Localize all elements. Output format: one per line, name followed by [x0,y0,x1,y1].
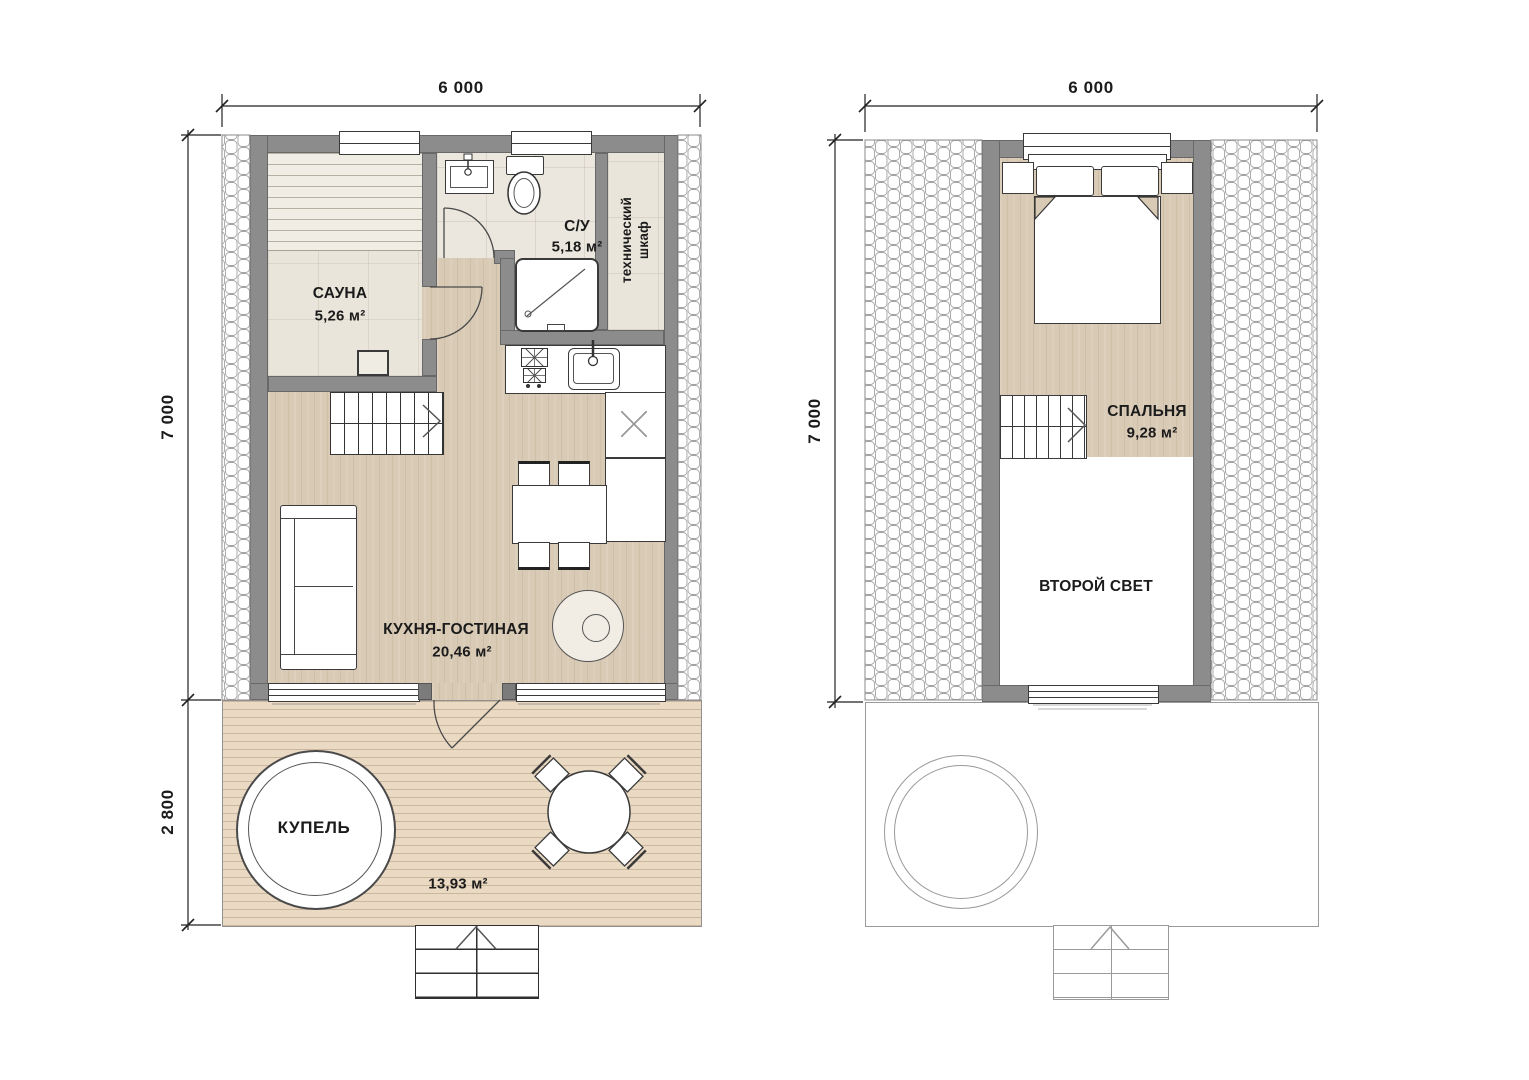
stove-knob [537,384,541,388]
shower [515,258,599,332]
dim-height-second-floor: 7 000 [805,398,825,444]
window-south-2 [516,683,666,702]
window-north-2 [511,131,592,155]
bath-sink [445,160,494,194]
pouf-inner [582,614,610,642]
bathroom-label: С/У [564,218,590,236]
sofa-armrest-line [281,518,356,519]
sofa-armrest-line [281,654,356,655]
door-post-left [418,683,432,700]
wall-west [250,135,268,700]
nightstand [1002,162,1034,194]
entry-door-opening [432,683,502,700]
bar-chair [558,542,590,570]
stove-knob [526,384,530,388]
floorplan-canvas: 6 000 7 000 2 800 6 000 7 000 САУНА 5,26… [0,0,1529,1080]
wall-north [250,135,678,153]
wall-east [664,135,678,700]
dim-width-first-floor: 6 000 [438,78,484,98]
wall2-west [982,140,1000,702]
bedroom-label: СПАЛЬНЯ [1107,403,1186,421]
window2-south [1028,685,1159,704]
wall2-east [1193,140,1211,702]
kitchen-living-area-label: 20,46 м² [432,644,491,661]
stove [521,348,549,389]
hot-tub-outline-inner [894,765,1028,899]
sauna-area-label: 5,26 м² [315,308,366,325]
kitchen-island-counter [605,392,666,542]
bar-chair [518,542,550,570]
window-north-1 [339,131,420,155]
tech-closet-label: технический шкаф [619,190,653,290]
dim-height-first-floor: 7 000 [158,394,178,440]
bedroom-area-label: 9,28 м² [1127,425,1178,442]
bar-table [512,485,607,544]
entry-steps-first-floor [415,925,539,999]
window-south-1 [268,683,420,702]
sauna-label: САУНА [313,285,367,303]
toilet-tank [506,156,544,175]
sofa [280,505,357,670]
bed-blanket [1034,196,1161,324]
pouf [552,590,624,662]
door-post-right [502,683,516,700]
pillow [1101,166,1159,196]
sauna-south-wall [268,376,437,392]
sauna-east-wall-lower [422,339,437,376]
sauna-east-wall-upper [422,153,437,287]
kitchen-sink-basin [573,353,614,384]
dim-terrace-depth: 2 800 [158,789,178,835]
sauna-heater [357,350,389,376]
second-light-label: ВТОРОЙ СВЕТ [1039,578,1153,596]
sofa-cushion-line [294,586,353,587]
entry-steps-outline-below [1053,925,1169,1000]
sauna-bench [268,153,422,251]
kitchen-sink [568,348,620,390]
kitchen-living-label: КУХНЯ-ГОСТИНАЯ [383,621,529,639]
stove-burner-icon [523,368,546,383]
bath-sink-basin [450,166,488,188]
stairs-first-floor [330,392,444,455]
terrace-area-label: 13,93 м² [428,876,487,893]
pillow [1036,166,1094,196]
stairs-second-floor [1000,395,1087,459]
stove-burner-icon [521,348,548,367]
hot-tub-label: КУПЕЛЬ [278,818,351,838]
bath-kitchen-wall [500,330,664,345]
nightstand [1161,162,1193,194]
hot-tub-outline-below [884,755,1038,909]
bathroom-area-label: 5,18 м² [552,239,603,256]
vestibule-floor [437,258,500,392]
shower-threshold [547,324,565,331]
counter-divider [606,457,665,459]
dim-width-second-floor: 6 000 [1068,78,1114,98]
second-light-void [1000,457,1193,685]
counter-x-mark [621,411,647,437]
